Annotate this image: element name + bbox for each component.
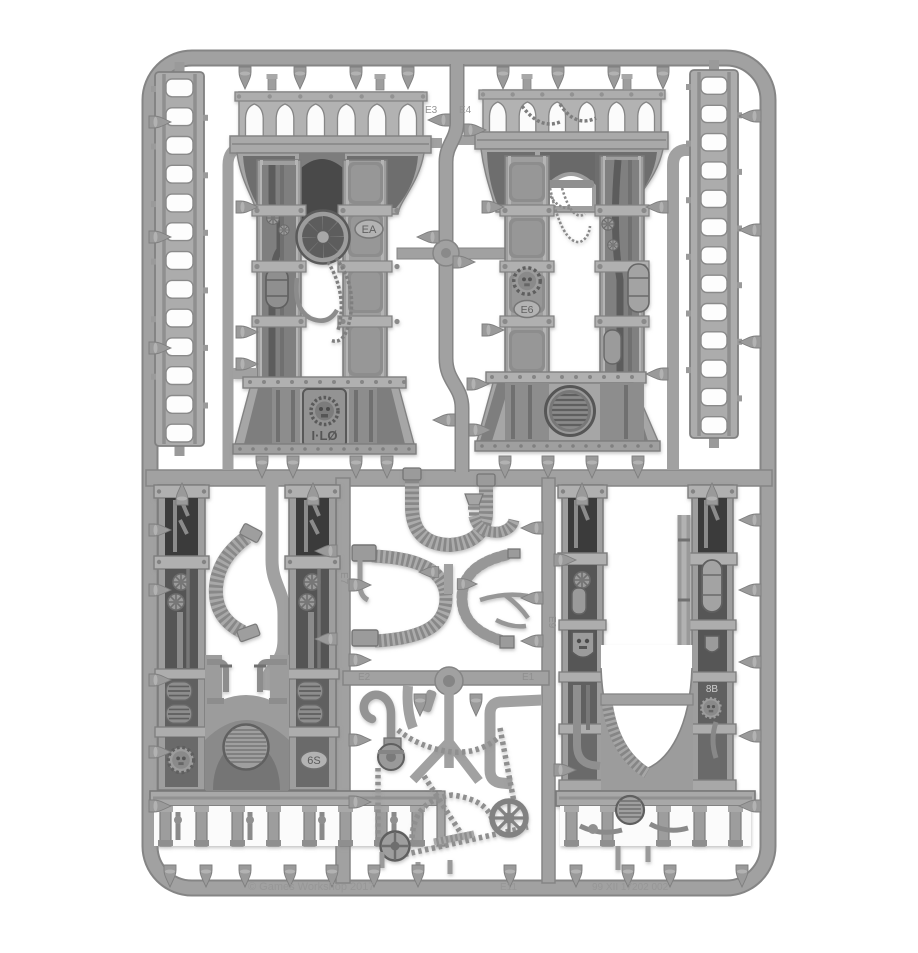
svg-text:E7: E7 <box>338 572 349 585</box>
svg-text:E3: E3 <box>425 105 438 116</box>
svg-text:© Games Workshop 2017: © Games Workshop 2017 <box>248 881 375 893</box>
svg-text:I·LØ: I·LØ <box>312 428 338 443</box>
svg-text:E1: E1 <box>522 672 535 683</box>
svg-text:E11: E11 <box>500 882 517 893</box>
svg-text:E4: E4 <box>459 105 472 116</box>
svg-text:E6: E6 <box>521 304 534 316</box>
svg-text:E9: E9 <box>546 616 557 629</box>
svg-text:EA: EA <box>362 224 377 236</box>
svg-text:E2: E2 <box>358 672 371 683</box>
svg-text:99 XII 17202 002: 99 XII 17202 002 <box>592 882 669 893</box>
svg-text:8B: 8B <box>706 684 719 695</box>
svg-text:6S: 6S <box>307 755 320 767</box>
